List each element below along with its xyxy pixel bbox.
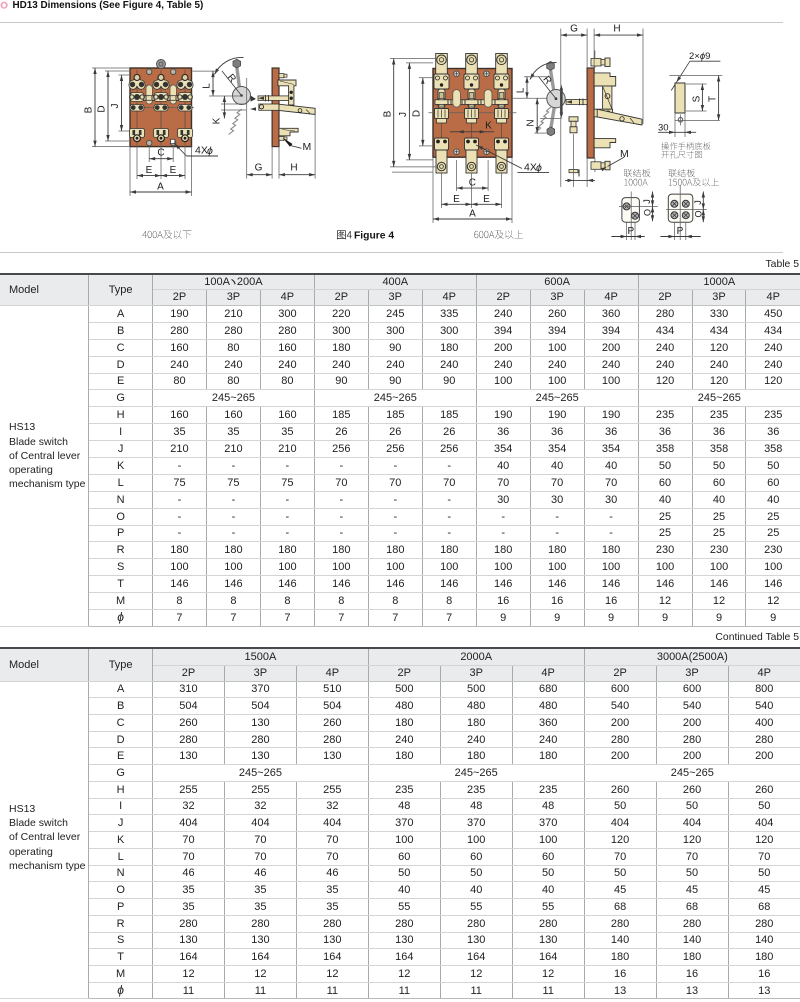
- svg-text:K: K: [485, 121, 492, 132]
- svg-text:J: J: [642, 199, 652, 204]
- svg-text:M: M: [303, 141, 312, 153]
- svg-text:C: C: [469, 177, 476, 188]
- svg-text:A: A: [469, 208, 476, 219]
- svg-text:H: H: [290, 163, 297, 174]
- svg-text:O: O: [693, 210, 703, 217]
- svg-text:Figure 4: Figure 4: [354, 231, 394, 242]
- svg-text:4X: 4X: [195, 145, 208, 157]
- svg-text:A: A: [157, 181, 164, 192]
- svg-text:D: D: [411, 110, 422, 117]
- svg-text:G: G: [255, 163, 263, 174]
- svg-text:S: S: [692, 95, 703, 102]
- svg-text:T: T: [708, 96, 719, 102]
- svg-text:J: J: [693, 200, 703, 205]
- svg-text:ϕ: ϕ: [536, 162, 542, 174]
- svg-text:I: I: [578, 169, 581, 180]
- svg-text:M: M: [620, 148, 629, 160]
- svg-text:O: O: [643, 209, 653, 216]
- svg-text:D: D: [97, 105, 108, 112]
- svg-text:K: K: [212, 117, 223, 124]
- svg-text:4X: 4X: [524, 162, 537, 174]
- svg-text:P: P: [627, 226, 634, 237]
- svg-text:L: L: [202, 83, 213, 89]
- svg-text:G: G: [570, 23, 578, 34]
- svg-text:C: C: [157, 148, 164, 159]
- svg-text:J: J: [398, 112, 409, 117]
- svg-text:2×ϕ9: 2×ϕ9: [689, 51, 710, 62]
- svg-text:E: E: [146, 165, 153, 176]
- svg-text:ϕ: ϕ: [207, 145, 213, 157]
- svg-text:J: J: [110, 104, 121, 109]
- svg-text:L: L: [516, 87, 527, 93]
- svg-text:B: B: [382, 110, 393, 117]
- svg-text:E: E: [483, 194, 490, 205]
- svg-text:P: P: [677, 226, 684, 237]
- svg-text:R: R: [225, 72, 238, 85]
- svg-text:H: H: [613, 23, 620, 34]
- svg-text:E: E: [453, 194, 460, 205]
- svg-text:E: E: [170, 165, 177, 176]
- svg-text:N: N: [526, 119, 537, 126]
- svg-text:B: B: [84, 106, 95, 113]
